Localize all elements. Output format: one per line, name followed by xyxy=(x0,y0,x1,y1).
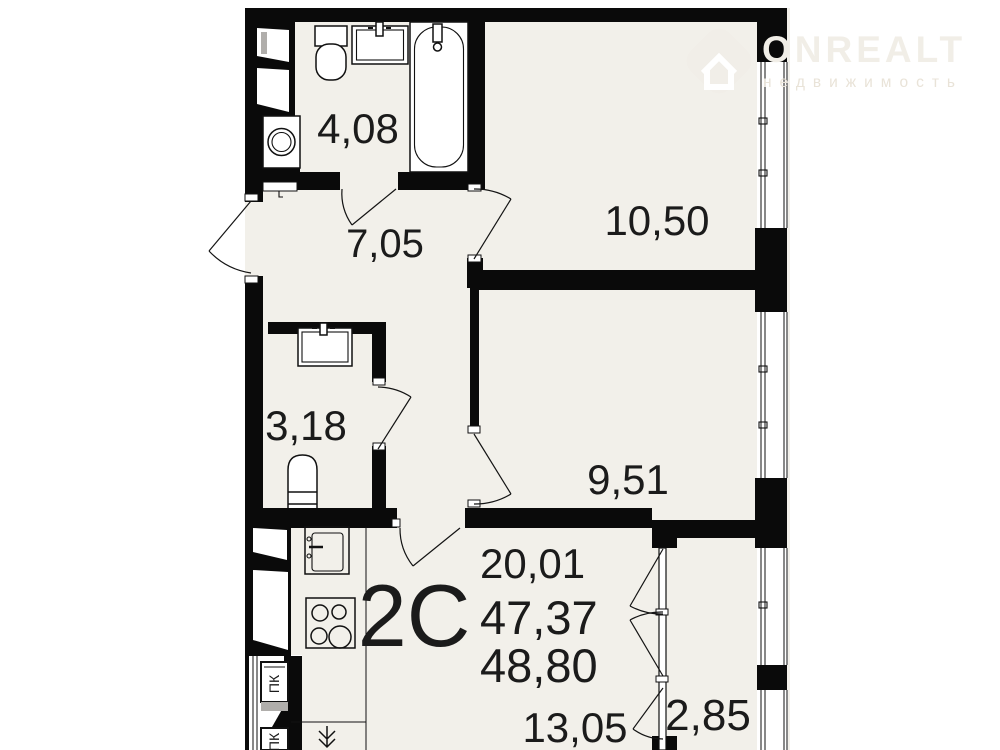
pk-mark-bottom: ПК xyxy=(266,732,282,750)
wc-toilet-icon xyxy=(288,455,317,508)
room-area-hallway: 7,05 xyxy=(346,222,424,266)
apartment-area-2: 47,37 xyxy=(480,591,598,644)
watermark-brand: ONREALT xyxy=(762,29,966,70)
watermark-tagline: недвижимость xyxy=(763,74,963,91)
bathtub-icon xyxy=(410,22,468,172)
wc-sink-icon xyxy=(298,323,352,366)
room-area-kitchen-living: 13,05 xyxy=(522,704,627,750)
room-area-room-mid: 9,51 xyxy=(587,456,669,503)
floor-plan-page: ПК ПК xyxy=(0,0,1000,750)
apartment-area-1: 20,01 xyxy=(480,540,585,587)
pk-mark-top: ПК xyxy=(266,674,282,693)
floor-plan-drawing: ПК ПК xyxy=(0,0,1000,750)
sink-icon xyxy=(352,22,408,64)
room-area-room-top: 10,50 xyxy=(604,197,709,244)
room-area-balcony: 2,85 xyxy=(665,691,751,740)
watermark: ONREALT недвижимость xyxy=(681,23,966,99)
room-area-wc: 3,18 xyxy=(265,402,347,449)
toilet-icon xyxy=(315,26,347,80)
apartment-area-3: 48,80 xyxy=(480,639,598,692)
apartment-type-code: 2С xyxy=(358,566,471,665)
room-area-bathroom: 4,08 xyxy=(317,105,399,152)
washing-machine-icon xyxy=(263,116,300,168)
